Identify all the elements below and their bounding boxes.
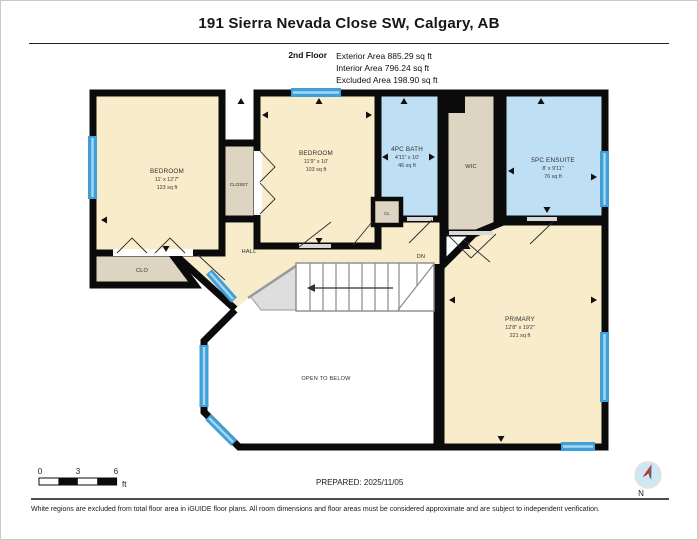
window-top-bedroom-mid <box>291 88 341 97</box>
window-left-bedroom <box>88 136 97 199</box>
compass-north-label: N <box>638 489 644 498</box>
room-ensuite <box>503 93 605 219</box>
label-primary-name: PRIMARY <box>505 316 536 323</box>
label-bedroom-mid-name: BEDROOM <box>299 150 333 157</box>
label-bath-area: 46 sq ft <box>398 163 416 169</box>
label-bedroom-left-dims: 11' x 12'7" <box>155 177 179 183</box>
label-ensuite-dims: 8' x 9'11" <box>542 166 563 172</box>
scale-tick-3: 3 <box>76 467 81 476</box>
label-primary-area: 221 sq ft <box>510 333 531 339</box>
wic-wall-notch <box>443 90 465 113</box>
compass-icon <box>635 462 661 488</box>
label-closet: CLOSET <box>230 182 249 187</box>
window-primary-right <box>600 332 609 402</box>
room-closet <box>222 143 257 219</box>
disclaimer-text: White regions are excluded from total fl… <box>31 506 600 513</box>
window-openbelow-left <box>200 345 209 407</box>
scale-tick-0: 0 <box>38 467 43 476</box>
stairs-box <box>296 263 434 311</box>
label-open-below: OPEN TO BELOW <box>301 376 351 382</box>
label-dn: DN <box>417 254 425 260</box>
window-primary-bottom <box>561 442 595 451</box>
scale-bar: 0 3 6 ft <box>38 467 127 489</box>
scale-tick-6: 6 <box>114 467 119 476</box>
window-ensuite-right <box>600 151 609 207</box>
label-ensuite-name: 5PC ENSUITE <box>531 157 575 164</box>
floor-plan-page: 191 Sierra Nevada Close SW, Calgary, AB … <box>0 0 698 540</box>
label-cl: CL <box>384 211 390 216</box>
label-ensuite-area: 76 sq ft <box>544 174 562 180</box>
label-hall: HALL <box>242 249 257 255</box>
scale-unit: ft <box>122 480 127 489</box>
prepared-date: PREPARED: 2025/11/05 <box>316 478 404 487</box>
label-primary-dims: 12'8" x 19'2" <box>505 325 535 331</box>
label-bath-name: 4PC BATH <box>391 146 423 153</box>
label-bedroom-mid-area: 103 sq ft <box>306 167 327 173</box>
label-wic: WIC <box>465 164 476 170</box>
floor-plan-canvas: BEDROOM 11' x 12'7" 123 sq ft BEDROOM 11… <box>1 1 698 540</box>
label-bedroom-left-name: BEDROOM <box>150 168 184 175</box>
label-clo: CLO <box>136 268 149 274</box>
label-bedroom-mid-dims: 11'9" x 10' <box>304 159 328 165</box>
room-wic <box>445 93 497 233</box>
label-bedroom-left-area: 123 sq ft <box>157 185 178 191</box>
label-bath-dims: 4'11" x 10' <box>395 155 419 161</box>
